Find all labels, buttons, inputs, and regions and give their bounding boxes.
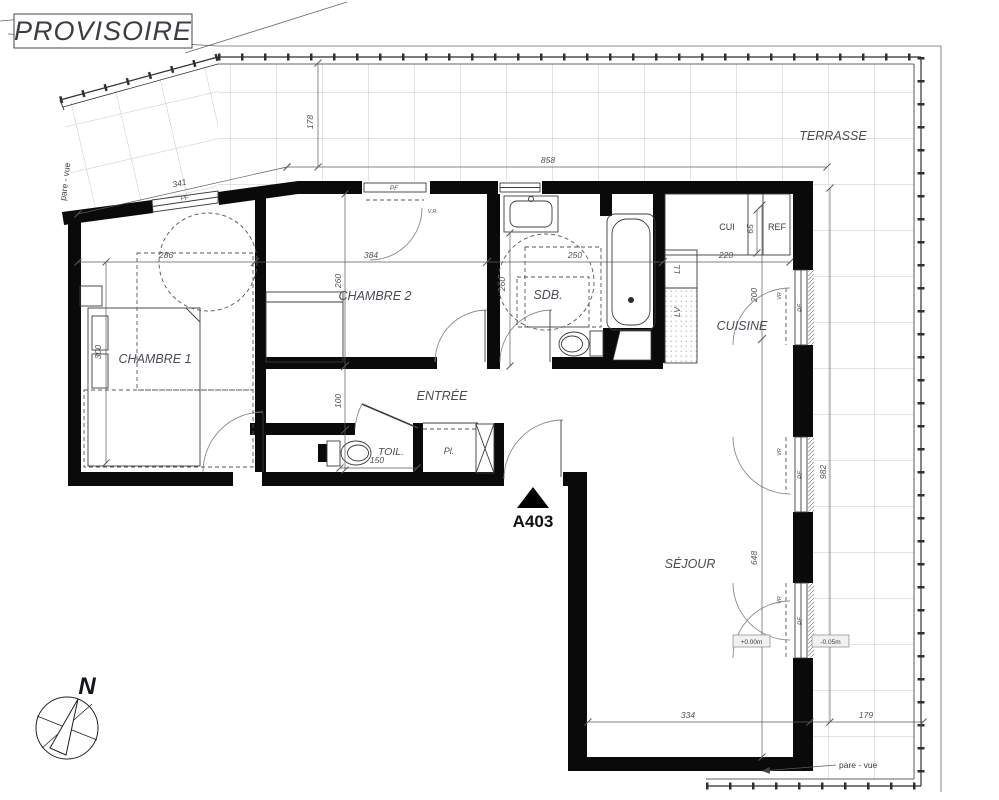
dim-sdb-depth: 260	[497, 277, 507, 292]
dim-fridge-width: 65	[745, 224, 755, 234]
window-label: PF	[390, 185, 399, 192]
door-chambre2	[435, 310, 487, 362]
bathtub	[607, 214, 655, 330]
level-terrace: -0.05m	[820, 639, 840, 646]
window-label: PF	[797, 303, 804, 312]
door-toil	[355, 404, 418, 429]
level-markers: +0.00m -0.05m	[733, 635, 849, 647]
nightstand	[80, 286, 102, 306]
dim-hall-depth: 100	[333, 394, 343, 408]
dim-sejour-depth: 648	[749, 551, 759, 565]
bed	[80, 286, 200, 466]
note-pare-vue-bottom: pare - vue	[839, 760, 878, 770]
sink	[504, 196, 558, 232]
level-interior: +0.00m	[741, 639, 763, 646]
shutter-label: VR	[777, 596, 783, 604]
window-sejour-pf-1: PF VR	[733, 437, 814, 512]
stamp-label: PROVISOIRE	[14, 16, 192, 46]
terrace-tile-grid	[62, 64, 914, 779]
label-lv: LV	[672, 306, 682, 317]
note-pare-vue-left: pare - vue	[58, 162, 73, 201]
door-entry	[504, 420, 563, 479]
dishwasher-unit	[665, 288, 697, 363]
room-label-cuisine: CUISINE	[717, 319, 768, 333]
shutter-label: VR	[777, 292, 783, 300]
dim-kitchen-depth: 200	[749, 288, 759, 303]
label-ref: REF	[768, 222, 787, 232]
shutter-label: VR	[777, 448, 783, 456]
label-cui: CUI	[719, 222, 735, 232]
window-sdb	[500, 183, 540, 192]
dim-ch2-depth: 260	[333, 274, 343, 289]
room-label-toil: TOIL.	[378, 446, 404, 458]
door-sdb	[500, 310, 552, 362]
dim-terrace-bottom: 179	[859, 710, 873, 720]
unit-id: A403	[513, 512, 554, 531]
dim-ch2-width: 384	[364, 250, 378, 260]
window-label: PF	[797, 616, 804, 625]
label-ll: LL	[672, 264, 682, 274]
room-label-placard: Pl.	[444, 446, 455, 456]
dim-ch1-width: 286	[158, 250, 173, 260]
window-chambre2-pf: PF V.R	[364, 183, 436, 260]
dim-sdb-width: 250	[567, 250, 582, 260]
floor-plan-drawing: PF PF V.R PF VR PF VR PF VR	[0, 0, 999, 800]
duct-shaft	[476, 424, 494, 473]
room-label-entree: ENTRÉE	[417, 388, 468, 403]
toilet-sdb	[559, 331, 603, 356]
provisional-stamp: PROVISOIRE	[14, 14, 192, 48]
window-cuisine-pf: PF VR	[733, 270, 814, 345]
room-label-chambre1: CHAMBRE 1	[119, 352, 192, 366]
bath-step	[613, 331, 651, 360]
north-label: N	[78, 673, 96, 700]
dim-ch1-depth: 300	[93, 345, 103, 359]
room-label-sdb: SDB.	[533, 288, 562, 302]
entrance-triangle-icon	[517, 487, 549, 508]
shutter-label: V.R	[428, 209, 437, 215]
dim-terrace-depth: 178	[305, 115, 315, 129]
room-label-chambre2: CHAMBRE 2	[339, 289, 412, 303]
exterior-walls	[62, 181, 813, 771]
toilet-toil	[318, 441, 371, 466]
dim-sejour-width: 334	[681, 710, 695, 720]
wardrobe-chambre2	[266, 292, 343, 362]
dim-terrace-width: 858	[541, 155, 555, 165]
room-label-terrasse: TERRASSE	[799, 129, 867, 143]
dim-terrace-side: 982	[818, 465, 828, 479]
unit-entrance-marker: A403	[513, 487, 554, 531]
room-label-sejour: SÉJOUR	[665, 556, 716, 571]
north-compass-icon: N	[36, 673, 98, 759]
window-label: PF	[797, 470, 804, 479]
pillow	[92, 316, 108, 350]
door-chambre1	[203, 412, 263, 472]
floor-plan-page: PF PF V.R PF VR PF VR PF VR	[0, 0, 999, 800]
dim-kitchen-width: 220	[718, 250, 733, 260]
closet-placard	[423, 423, 478, 429]
